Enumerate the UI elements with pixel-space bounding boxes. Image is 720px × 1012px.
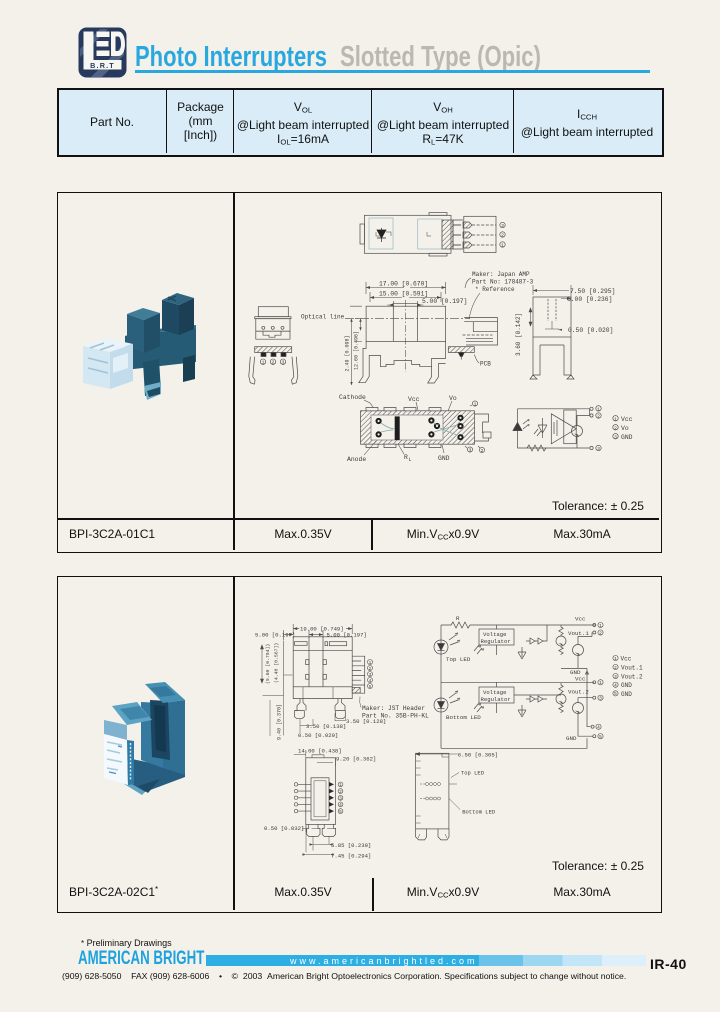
svg-text:17.00 [0.670]: 17.00 [0.670] xyxy=(379,281,428,288)
svg-text:2: 2 xyxy=(369,667,372,672)
svg-text:2: 2 xyxy=(597,414,600,420)
svg-text:5.85 [0.230]: 5.85 [0.230] xyxy=(331,842,371,849)
svg-text:2: 2 xyxy=(481,448,484,454)
svg-text:5: 5 xyxy=(339,810,342,815)
svg-text:Part No. 35B-PH-KL: Part No. 35B-PH-KL xyxy=(362,713,429,720)
svg-text:PCB: PCB xyxy=(480,361,491,368)
svg-text:5: 5 xyxy=(369,685,372,690)
svg-text:Voltage: Voltage xyxy=(483,631,507,638)
svg-text:3: 3 xyxy=(614,675,617,680)
svg-text:L: L xyxy=(409,457,412,463)
svg-text:7.45 [0.294]: 7.45 [0.294] xyxy=(331,853,371,860)
svg-text:Voltage: Voltage xyxy=(483,689,507,696)
svg-text:Vout.1: Vout.1 xyxy=(621,665,643,672)
svg-text:4: 4 xyxy=(369,679,372,684)
svg-text:* Reference: * Reference xyxy=(475,286,515,293)
svg-text:Top LED: Top LED xyxy=(446,656,471,663)
svg-text:R: R xyxy=(404,454,408,461)
svg-text:Bottom LED: Bottom LED xyxy=(462,809,496,816)
svg-text:0.50 [0.020]: 0.50 [0.020] xyxy=(298,732,338,739)
svg-text:6.50 [0.305]: 6.50 [0.305] xyxy=(458,752,498,759)
svg-text:Vcc: Vcc xyxy=(575,676,586,683)
svg-text:3: 3 xyxy=(597,446,600,452)
svg-text:1: 1 xyxy=(369,661,372,666)
svg-text:Maker: JST Header: Maker: JST Header xyxy=(362,705,425,712)
svg-text:(4.40 [0.567]): (4.40 [0.567]) xyxy=(274,643,280,683)
svg-text:Vcc: Vcc xyxy=(575,616,586,623)
svg-text:1: 1 xyxy=(339,783,342,788)
svg-text:3: 3 xyxy=(599,697,602,702)
svg-text:Bottom LED: Bottom LED xyxy=(446,714,481,721)
svg-text:2: 2 xyxy=(614,425,617,431)
svg-text:GND: GND xyxy=(566,735,577,742)
svg-text:1: 1 xyxy=(599,624,602,629)
svg-text:3: 3 xyxy=(282,360,285,366)
svg-text:Top LED: Top LED xyxy=(461,770,485,777)
svg-text:(9.60 [0.794]): (9.60 [0.794]) xyxy=(265,644,271,684)
svg-text:Cathode: Cathode xyxy=(339,394,366,401)
svg-text:Vcc: Vcc xyxy=(621,656,632,663)
svg-text:Regulator: Regulator xyxy=(481,696,511,703)
svg-text:15.00 [0.591]: 15.00 [0.591] xyxy=(379,291,428,298)
svg-text:GND: GND xyxy=(621,682,632,689)
svg-text:1: 1 xyxy=(474,402,477,408)
svg-text:7.50 [0.295]: 7.50 [0.295] xyxy=(570,288,615,295)
svg-text:R: R xyxy=(456,615,460,622)
svg-text:GND: GND xyxy=(621,691,632,698)
svg-text:4: 4 xyxy=(614,684,617,689)
svg-text:3: 3 xyxy=(339,797,342,802)
svg-text:Vo: Vo xyxy=(621,425,629,432)
svg-text:2: 2 xyxy=(272,360,275,366)
svg-text:5: 5 xyxy=(614,692,617,697)
svg-text:Anode: Anode xyxy=(347,456,366,463)
svg-text:3: 3 xyxy=(614,434,617,440)
svg-text:GND: GND xyxy=(438,455,450,462)
svg-text:3: 3 xyxy=(369,673,372,678)
svg-text:1: 1 xyxy=(599,681,602,686)
svg-text:0.50 [0.032]: 0.50 [0.032] xyxy=(264,825,304,832)
svg-text:9.40 [0.370]: 9.40 [0.370] xyxy=(277,704,283,740)
svg-text:GND: GND xyxy=(621,434,633,441)
svg-text:Regulator: Regulator xyxy=(481,638,511,645)
svg-text:0.50 [0.020]: 0.50 [0.020] xyxy=(568,327,613,334)
svg-text:1: 1 xyxy=(614,416,617,422)
svg-text:1: 1 xyxy=(597,406,600,412)
svg-text:2.49 [0.098]: 2.49 [0.098] xyxy=(345,335,351,371)
svg-text:Vout.2: Vout.2 xyxy=(621,674,643,681)
svg-text:14.00 [0.438]: 14.00 [0.438] xyxy=(298,748,342,755)
svg-text:4: 4 xyxy=(339,803,342,808)
svg-text:4: 4 xyxy=(597,726,600,731)
svg-text:2: 2 xyxy=(614,666,617,671)
svg-text:2: 2 xyxy=(339,790,342,795)
svg-text:6.00 [0.236]: 6.00 [0.236] xyxy=(567,296,612,303)
svg-text:Maker: Japan AMP: Maker: Japan AMP xyxy=(472,271,530,278)
svg-text:Vo: Vo xyxy=(449,395,457,402)
svg-text:Optical line: Optical line xyxy=(301,314,345,321)
svg-text:3: 3 xyxy=(469,448,472,454)
svg-text:Vout.2: Vout.2 xyxy=(568,689,589,696)
svg-text:B.R.T: B.R.T xyxy=(90,61,115,70)
svg-text:5.00 [0.197]: 5.00 [0.197] xyxy=(327,632,367,639)
svg-text:1: 1 xyxy=(262,360,265,366)
svg-text:5.00 [0.197]: 5.00 [0.197] xyxy=(422,298,467,305)
svg-text:2: 2 xyxy=(599,631,602,636)
svg-text:1: 1 xyxy=(614,657,617,662)
svg-text:Vout.1: Vout.1 xyxy=(568,630,589,637)
svg-text:3.50 [0.138]: 3.50 [0.138] xyxy=(306,723,346,730)
svg-text:1: 1 xyxy=(501,243,504,249)
svg-text:Vcc: Vcc xyxy=(621,416,633,423)
svg-text:Vcc: Vcc xyxy=(408,396,420,403)
svg-text:3: 3 xyxy=(501,223,504,229)
svg-text:2: 2 xyxy=(501,233,504,239)
svg-text:12.60 [0.496]: 12.60 [0.496] xyxy=(354,331,360,370)
svg-text:5: 5 xyxy=(599,735,602,740)
svg-text:9.20 [0.362]: 9.20 [0.362] xyxy=(336,756,376,763)
svg-text:Part No: 178487-3: Part No: 178487-3 xyxy=(472,279,534,286)
svg-text:3.60 [0.142]: 3.60 [0.142] xyxy=(515,313,522,356)
